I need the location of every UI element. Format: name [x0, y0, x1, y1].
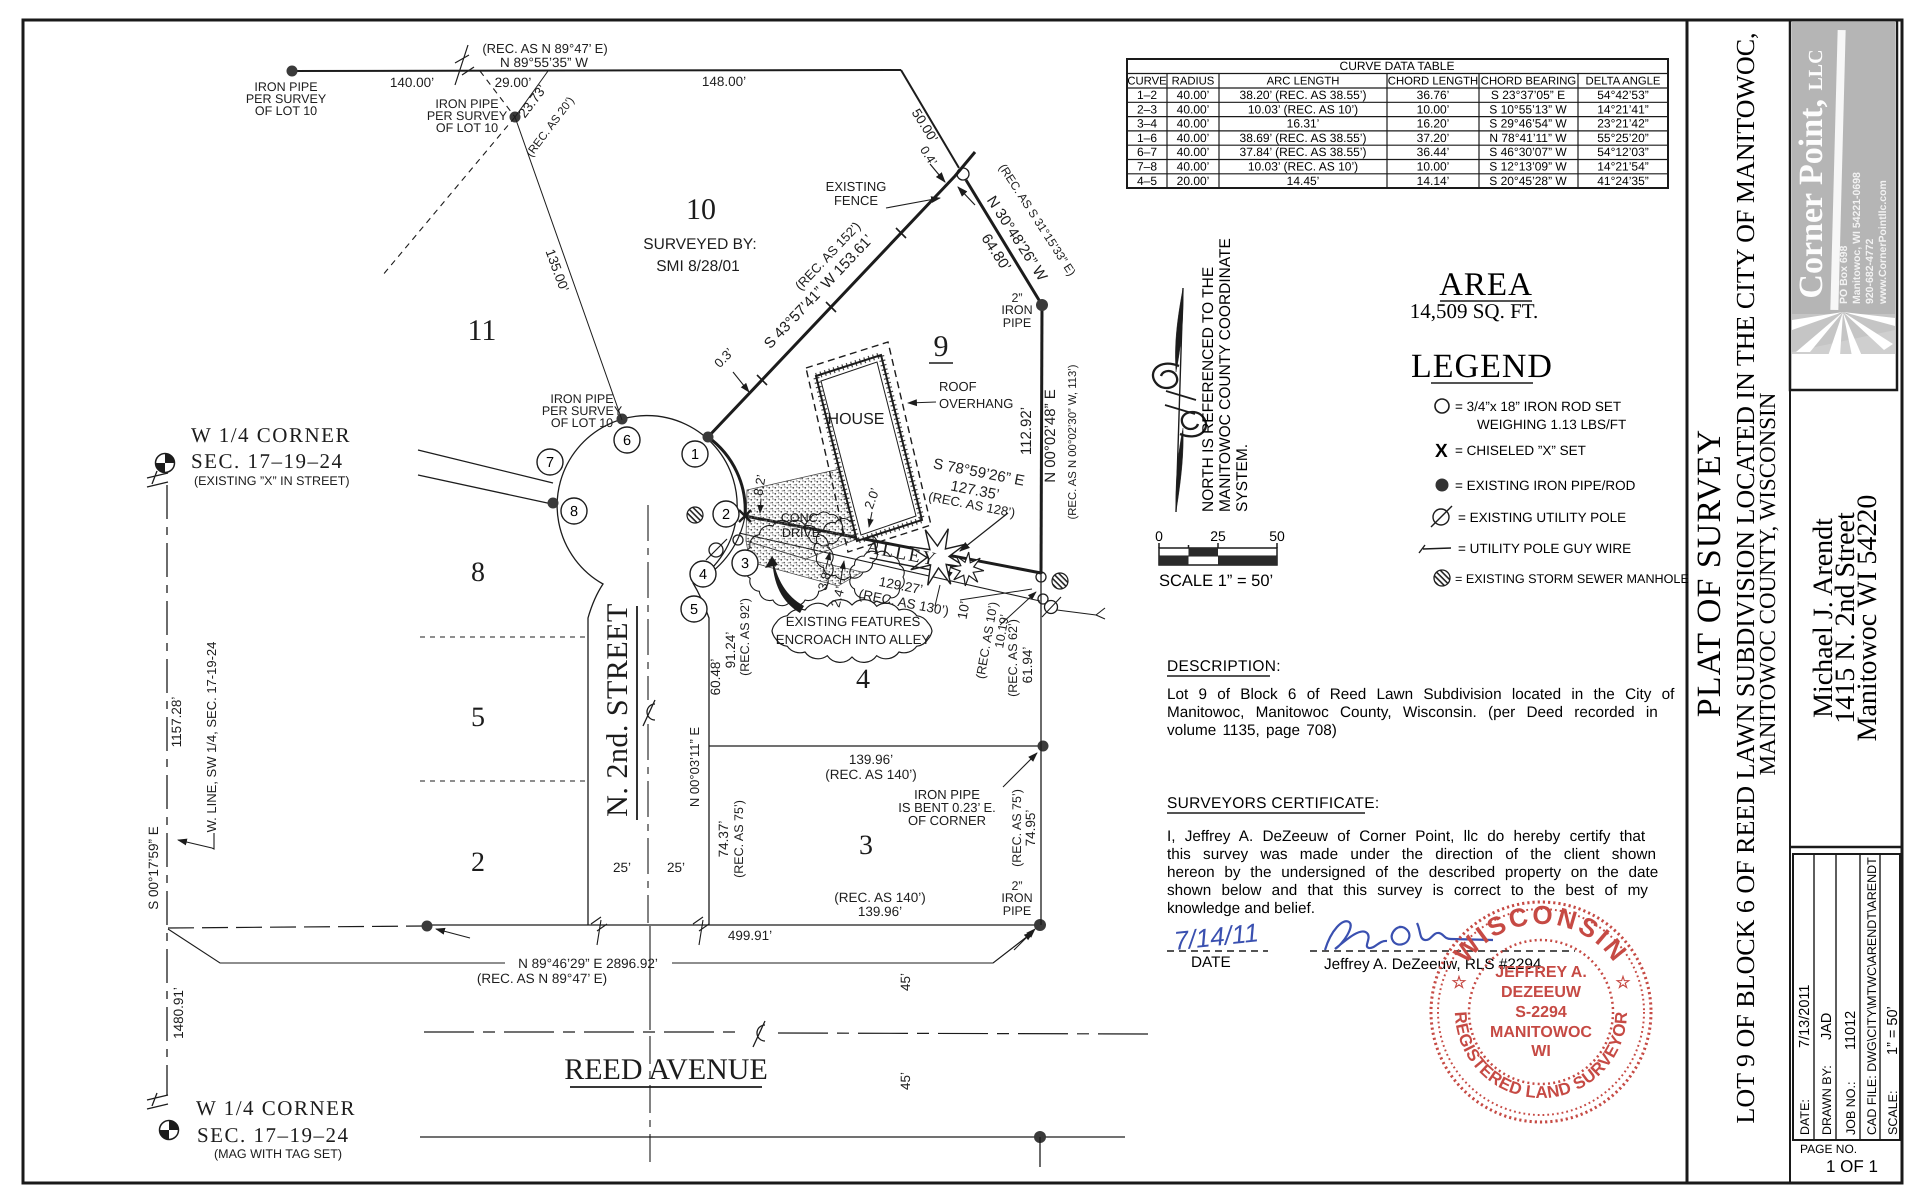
svg-text:4: 4: [699, 567, 707, 583]
svg-text:= 3/4”x 18” IRON ROD SET: = 3/4”x 18” IRON ROD SET: [1455, 399, 1621, 414]
svg-text:(REC. AS 140’): (REC. AS 140’): [834, 890, 926, 905]
svg-text:CHORD BEARING: CHORD BEARING: [1481, 76, 1576, 88]
svg-text:IRON: IRON: [1001, 891, 1032, 905]
svg-text:JAD: JAD: [1819, 1013, 1835, 1040]
svg-text:45’: 45’: [898, 1072, 913, 1090]
svg-text:SEC. 17–19–24: SEC. 17–19–24: [191, 449, 344, 473]
svg-text:38.20’ (REC. AS 38.55’): 38.20’ (REC. AS 38.55’): [1240, 88, 1367, 102]
svg-text:37.84’ (REC. AS 38.55’): 37.84’ (REC. AS 38.55’): [1240, 145, 1367, 159]
svg-text:S 10°55’13” W: S 10°55’13” W: [1489, 102, 1567, 116]
svg-text:112.92’: 112.92’: [1018, 407, 1035, 455]
svg-text:10.03’ (REC. AS 10’): 10.03’ (REC. AS 10’): [1248, 102, 1358, 116]
svg-text:DEZEEUW: DEZEEUW: [1501, 984, 1582, 1001]
svg-text:= CHISELED ”X” SET: = CHISELED ”X” SET: [1455, 443, 1586, 458]
svg-text:40.00’: 40.00’: [1177, 145, 1210, 159]
svg-text:25’: 25’: [667, 860, 685, 875]
svg-text:2: 2: [722, 507, 730, 523]
svg-text:1 OF 1: 1 OF 1: [1826, 1157, 1878, 1176]
svg-text:3–4: 3–4: [1137, 117, 1157, 131]
svg-text:(REC. AS 92’): (REC. AS 92’): [738, 598, 752, 676]
svg-text:60.48’: 60.48’: [708, 659, 723, 696]
svg-text:MANITOWOC: MANITOWOC: [1490, 1024, 1592, 1041]
svg-text:(REC. AS N 89°47’ E): (REC. AS N 89°47’ E): [482, 41, 607, 56]
svg-text:Manitowoc WI 54220: Manitowoc WI 54220: [1852, 495, 1883, 742]
svg-text:1–6: 1–6: [1137, 131, 1157, 145]
svg-text:N. 2nd. STREET: N. 2nd. STREET: [601, 603, 634, 817]
svg-text:29.00’: 29.00’: [495, 75, 532, 90]
svg-text:W. LINE, SW 1/4, SEC. 17-: W. LINE, SW 1/4, SEC. 17-19-24: [204, 642, 219, 833]
svg-text:DATE:: DATE:: [1798, 1099, 1812, 1135]
svg-text:X: X: [1435, 441, 1448, 462]
svg-text:N 00°03’11” E: N 00°03’11” E: [687, 727, 702, 807]
svg-text:74.37’: 74.37’: [716, 821, 731, 858]
svg-text:1: 1: [691, 447, 699, 463]
svg-text:PAGE NO.: PAGE NO.: [1800, 1142, 1857, 1156]
svg-text:3: 3: [741, 556, 749, 572]
svg-text:37.20’: 37.20’: [1417, 131, 1450, 145]
svg-text:ROOF: ROOF: [939, 379, 977, 394]
svg-text:S 00°17’59” E: S 00°17’59” E: [146, 826, 161, 909]
svg-text:= UTILITY POLE GUY WIRE: = UTILITY POLE GUY WIRE: [1458, 541, 1631, 556]
svg-text:DRAWN BY:: DRAWN BY:: [1820, 1065, 1834, 1135]
svg-text:45’: 45’: [898, 973, 913, 991]
svg-text:OF CORNER: OF CORNER: [908, 813, 986, 828]
svg-text:DRIVE: DRIVE: [782, 526, 820, 540]
svg-text:14.14’: 14.14’: [1417, 174, 1450, 188]
svg-text:(REC. AS 75’): (REC. AS 75’): [1010, 789, 1024, 867]
svg-text:WI: WI: [1531, 1043, 1551, 1060]
svg-text:499.91’: 499.91’: [728, 928, 772, 943]
svg-text:36.44’: 36.44’: [1417, 145, 1450, 159]
svg-text:MANITOWOC COUNTY COORDINATE: MANITOWOC COUNTY COORDINATE: [1217, 238, 1234, 512]
svg-text:(MAG WITH TAG SET): (MAG WITH TAG SET): [214, 1147, 342, 1161]
svg-text:148.00’: 148.00’: [702, 74, 746, 89]
svg-text:Manitowoc, Manitowoc County, W: Manitowoc, Manitowoc County, Wisconsin. …: [1167, 704, 1658, 721]
svg-text:4–5: 4–5: [1137, 174, 1157, 188]
svg-text:6: 6: [623, 433, 631, 449]
svg-text:25’: 25’: [613, 860, 631, 875]
svg-text:OF LOT 10: OF LOT 10: [255, 104, 317, 118]
svg-text:volume 1135, page 708): volume 1135, page 708): [1167, 722, 1337, 739]
svg-text:PIPE: PIPE: [1003, 316, 1032, 330]
svg-text:LEGEND: LEGEND: [1411, 348, 1553, 385]
svg-text:(EXISTING ”X” IN STREET): (EXISTING ”X” IN STREET): [194, 474, 350, 488]
svg-text:NORTH IS REFERENCED TO THE: NORTH IS REFERENCED TO THE: [1200, 267, 1217, 512]
svg-text:8: 8: [570, 504, 578, 520]
svg-text:0: 0: [1155, 528, 1163, 544]
svg-text:920-682-4772: 920-682-4772: [1864, 238, 1876, 304]
svg-text:7–8: 7–8: [1137, 160, 1157, 174]
svg-text:IRON: IRON: [1001, 303, 1032, 317]
svg-text:= EXISTING STORM SEWER MANHOL: = EXISTING STORM SEWER MANHOLE: [1455, 572, 1689, 586]
svg-text:JOB NO.:: JOB NO.:: [1844, 1082, 1858, 1135]
svg-text:1157.28’: 1157.28’: [169, 697, 184, 748]
svg-text:S 20°45’28” W: S 20°45’28” W: [1489, 174, 1567, 188]
svg-text:REED AVENUE: REED AVENUE: [564, 1053, 768, 1086]
svg-text:W 1/4 CORNER: W 1/4 CORNER: [196, 1096, 356, 1120]
svg-text:1–2: 1–2: [1137, 88, 1157, 102]
svg-text:RADIUS: RADIUS: [1172, 76, 1215, 88]
svg-text:2–3: 2–3: [1137, 102, 1157, 116]
svg-text:91.24’: 91.24’: [723, 632, 738, 669]
svg-text:PLAT OF SURVEY: PLAT OF SURVEY: [1691, 429, 1728, 717]
svg-text:1480.91’: 1480.91’: [171, 987, 186, 1039]
svg-text:N 00°02’48” E: N 00°02’48” E: [1042, 389, 1059, 483]
svg-text:PIPE: PIPE: [1003, 904, 1032, 918]
svg-text:= EXISTING UTILITY POLE: = EXISTING UTILITY POLE: [1458, 510, 1626, 525]
svg-text:N 78°41’11” W: N 78°41’11” W: [1489, 131, 1567, 145]
svg-text:EXISTING FEATURES: EXISTING FEATURES: [786, 614, 921, 629]
svg-text:55°25’20”: 55°25’20”: [1597, 131, 1649, 145]
svg-text:(REC. AS 140’): (REC. AS 140’): [825, 767, 917, 782]
svg-text:40.00’: 40.00’: [1177, 160, 1210, 174]
svg-text:this survey was made under the: this survey was made under the direction…: [1167, 846, 1656, 863]
svg-text:OVERHANG: OVERHANG: [939, 396, 1013, 411]
svg-text:6–7: 6–7: [1137, 145, 1157, 159]
svg-text:DELTA ANGLE: DELTA ANGLE: [1586, 76, 1661, 88]
svg-text:I, Jeffrey A. DeZeeuw of Corne: I, Jeffrey A. DeZeeuw of Corner Point, l…: [1167, 828, 1646, 845]
svg-text:38.69’ (REC. AS 38.55’): 38.69’ (REC. AS 38.55’): [1240, 131, 1367, 145]
svg-text:61.94’: 61.94’: [1020, 647, 1035, 684]
svg-text:54°42’53”: 54°42’53”: [1597, 88, 1649, 102]
svg-text:7: 7: [546, 455, 554, 471]
svg-text:CAD FILE: DWG\CITY\MTWC\ARENDT: CAD FILE: DWG\CITY\MTWC\ARENDT\ARENDT: [1865, 857, 1879, 1135]
svg-text:139.96’: 139.96’: [849, 752, 893, 767]
svg-text:25: 25: [1210, 528, 1226, 544]
svg-text:20.00’: 20.00’: [1177, 174, 1210, 188]
svg-text:9: 9: [934, 330, 949, 363]
svg-text:SYSTEM.: SYSTEM.: [1234, 444, 1251, 512]
svg-text:hereon by the undersigned of t: hereon by the undersigned of the describ…: [1167, 864, 1658, 881]
svg-text:CURVE DATA TABLE: CURVE DATA TABLE: [1340, 59, 1455, 73]
svg-text:= EXISTING IRON PIPE/ROD: = EXISTING IRON PIPE/ROD: [1455, 478, 1636, 493]
svg-text:WEIGHING 1.13 LBS/FT: WEIGHING 1.13 LBS/FT: [1477, 417, 1626, 432]
svg-text:74.95’: 74.95’: [1023, 810, 1038, 847]
svg-text:16.31’: 16.31’: [1287, 117, 1320, 131]
svg-text:Lot 9 of Block 6 of Reed Lawn: Lot 9 of Block 6 of Reed Lawn Subdivisio…: [1167, 686, 1675, 703]
svg-text:W 1/4 CORNER: W 1/4 CORNER: [191, 423, 351, 447]
svg-text:SURVEYORS CERTIFICATE:: SURVEYORS CERTIFICATE:: [1167, 795, 1379, 812]
svg-text:ENCROACH INTO ALLEY: ENCROACH INTO ALLEY: [776, 632, 931, 647]
svg-text:ARC LENGTH: ARC LENGTH: [1267, 76, 1340, 88]
svg-text:11: 11: [468, 314, 497, 347]
svg-text:CHORD LENGTH: CHORD LENGTH: [1388, 76, 1478, 88]
svg-text:S-2294: S-2294: [1515, 1004, 1567, 1021]
svg-text:DATE: DATE: [1191, 954, 1231, 971]
svg-text:OF LOT 10: OF LOT 10: [551, 416, 613, 430]
svg-text:OF LOT 10: OF LOT 10: [436, 121, 498, 135]
svg-text:MANITOWOC COUNTY, WISCONSIN: MANITOWOC COUNTY, WISCONSIN: [1755, 392, 1780, 775]
svg-text:S 46°30’07” W: S 46°30’07” W: [1489, 145, 1567, 159]
svg-text:N 89°46’29” E 2896.92’: N 89°46’29” E 2896.92’: [518, 956, 658, 971]
svg-text:50: 50: [1269, 528, 1285, 544]
svg-text:11012: 11012: [1843, 1011, 1859, 1050]
svg-text:☆: ☆: [1615, 973, 1631, 992]
svg-text:140.00’: 140.00’: [390, 75, 434, 90]
svg-text:8: 8: [471, 557, 485, 588]
svg-text:40.00’: 40.00’: [1177, 102, 1210, 116]
svg-text:www.CornerPointllc.com: www.CornerPointllc.com: [1877, 180, 1889, 305]
svg-text:HOUSE: HOUSE: [828, 411, 885, 428]
svg-text:S 12°13’09” W: S 12°13’09” W: [1489, 160, 1567, 174]
svg-text:14.45’: 14.45’: [1287, 174, 1320, 188]
svg-text:AREA: AREA: [1439, 267, 1533, 303]
svg-text:SURVEYED BY:: SURVEYED BY:: [643, 236, 756, 253]
svg-text:14°21’41”: 14°21’41”: [1597, 102, 1649, 116]
svg-text:4: 4: [856, 664, 870, 695]
svg-text:S 29°46’54” W: S 29°46’54” W: [1489, 117, 1567, 131]
svg-text:10.03’ (REC. AS 10’): 10.03’ (REC. AS 10’): [1248, 160, 1358, 174]
svg-text:14,509 SQ. FT.: 14,509 SQ. FT.: [1410, 299, 1539, 323]
svg-text:SEC. 17–19–24: SEC. 17–19–24: [197, 1123, 350, 1147]
svg-text:23°21’42”: 23°21’42”: [1597, 117, 1649, 131]
svg-text:10’: 10’: [955, 600, 973, 620]
svg-text:139.96’: 139.96’: [858, 904, 902, 919]
svg-text:(REC. AS 75’): (REC. AS 75’): [732, 800, 746, 878]
svg-text:14°21’54”: 14°21’54”: [1597, 160, 1649, 174]
svg-text:3: 3: [859, 830, 873, 861]
svg-text:(REC. AS N 00°02’30” W, 113’): (REC. AS N 00°02’30” W, 113’): [1067, 364, 1079, 519]
svg-text:5: 5: [690, 602, 698, 618]
svg-text:2: 2: [471, 847, 485, 878]
svg-text:SCALE 1” = 50’: SCALE 1” = 50’: [1159, 572, 1273, 590]
svg-text:CURVE: CURVE: [1127, 76, 1167, 88]
svg-text:N 89°55’35” W: N 89°55’35” W: [500, 55, 588, 70]
svg-text:☆: ☆: [1451, 973, 1467, 992]
svg-text:EXISTING: EXISTING: [826, 179, 887, 194]
svg-text:54°12’03”: 54°12’03”: [1597, 145, 1649, 159]
svg-text:knowledge and belief.: knowledge and belief.: [1167, 900, 1315, 917]
svg-text:5: 5: [471, 702, 485, 733]
svg-text:10: 10: [686, 193, 716, 226]
svg-text:SMI 8/28/01: SMI 8/28/01: [656, 258, 740, 275]
svg-text:SCALE:: SCALE:: [1886, 1091, 1900, 1135]
svg-text:40.00’: 40.00’: [1177, 117, 1210, 131]
svg-text:Manitowoc, WI 54221-0698: Manitowoc, WI 54221-0698: [1851, 172, 1863, 304]
svg-text:(REC. AS N 89°47’ E): (REC. AS N 89°47’ E): [477, 971, 607, 986]
svg-text:40.00’: 40.00’: [1177, 131, 1210, 145]
svg-text:16.20’: 16.20’: [1417, 117, 1450, 131]
svg-text:S 23°37’05” E: S 23°37’05” E: [1491, 88, 1565, 102]
svg-text:1” = 50’: 1” = 50’: [1885, 1006, 1901, 1055]
svg-text:36.76’: 36.76’: [1417, 88, 1450, 102]
svg-text:PO Box 698: PO Box 698: [1838, 245, 1850, 304]
svg-text:CONC.: CONC.: [781, 511, 821, 525]
svg-text:10.00’: 10.00’: [1417, 102, 1450, 116]
svg-text:7/13/2011: 7/13/2011: [1797, 985, 1813, 1048]
svg-text:(REC. AS 62’): (REC. AS 62’): [1006, 619, 1020, 697]
svg-text:41°24’35”: 41°24’35”: [1597, 174, 1649, 188]
svg-text:JEFFREY A.: JEFFREY A.: [1495, 964, 1587, 981]
svg-text:10.00’: 10.00’: [1417, 160, 1450, 174]
svg-text:shown below and that this surv: shown below and that this survey is corr…: [1167, 882, 1648, 899]
svg-text:FENCE: FENCE: [834, 193, 878, 208]
svg-text:40.00’: 40.00’: [1177, 88, 1210, 102]
svg-text:DESCRIPTION:: DESCRIPTION:: [1167, 658, 1281, 675]
